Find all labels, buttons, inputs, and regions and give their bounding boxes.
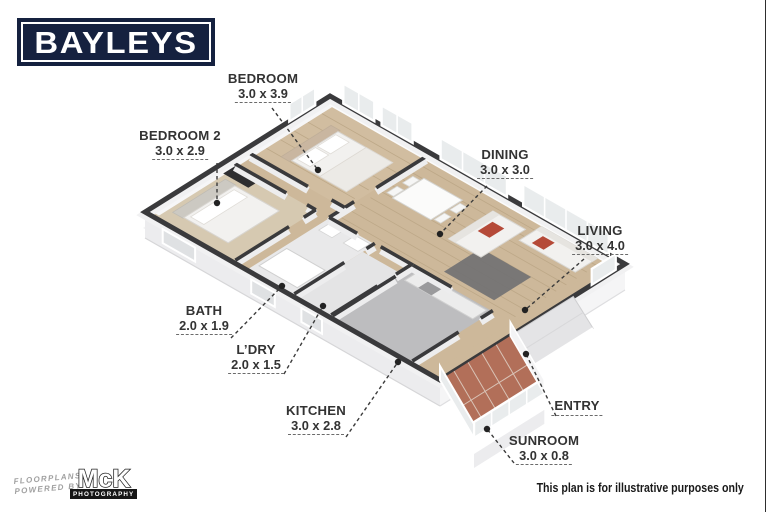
room-name-living: LIVING [572, 224, 628, 238]
room-label-bedroom2: BEDROOM 23.0 x 2.9 [139, 129, 221, 160]
room-name-kitchen: KITCHEN [286, 404, 346, 418]
room-name-bedroom2: BEDROOM 2 [139, 129, 221, 143]
room-dims-bedroom: 3.0 x 3.9 [235, 87, 291, 103]
room-name-sunroom: SUNROOM [509, 434, 579, 448]
mck-photography-logo: FLOORPLANS POWERED BY McK PHOTOGRAPHY [13, 465, 143, 505]
leader-dot-bath [279, 283, 285, 289]
room-dims-bedroom2: 3.0 x 2.9 [152, 144, 208, 160]
floor-plan-3d [0, 0, 768, 512]
room-label-dining: DINING3.0 x 3.0 [477, 148, 533, 179]
room-dims-kitchen: 3.0 x 2.8 [288, 419, 344, 435]
room-name-bath: BATH [176, 304, 232, 318]
room-name-ldry: L’DRY [228, 343, 284, 357]
room-label-living: LIVING3.0 x 4.0 [572, 224, 628, 255]
room-dims-living: 3.0 x 4.0 [572, 239, 628, 255]
leader-dot-entry [523, 351, 529, 357]
room-label-bedroom: BEDROOM3.0 x 3.9 [228, 72, 298, 103]
leader-dot-bedroom2 [214, 200, 220, 206]
photo-edge-line [765, 0, 767, 512]
disclaimer-text: This plan is for illustrative purposes o… [537, 481, 744, 495]
room-label-kitchen: KITCHEN3.0 x 2.8 [286, 404, 346, 435]
room-label-sunroom: SUNROOM3.0 x 0.8 [509, 434, 579, 465]
room-name-bedroom: BEDROOM [228, 72, 298, 86]
room-label-ldry: L’DRY2.0 x 1.5 [228, 343, 284, 374]
room-name-text: ENTRY [551, 399, 602, 416]
room-dims-ldry: 2.0 x 1.5 [228, 358, 284, 374]
leader-dot-kitchen [395, 359, 401, 365]
room-dims-bath: 2.0 x 1.9 [176, 319, 232, 335]
room-dims-sunroom: 3.0 x 0.8 [516, 449, 572, 465]
floorplan-page: BAYLEYS BEDROOM3.0 x 3.9BEDROOM 23.0 x 2… [0, 0, 768, 512]
leader-dot-dining [437, 231, 443, 237]
leader-dot-ldry [320, 303, 326, 309]
room-label-bath: BATH2.0 x 1.9 [176, 304, 232, 335]
leader-dot-sunroom [484, 426, 490, 432]
room-name-entry: ENTRY [551, 399, 602, 416]
photography-bar: PHOTOGRAPHY [70, 489, 137, 499]
leader-dot-bedroom [315, 167, 321, 173]
leader-dot-living [522, 307, 528, 313]
room-label-entry: ENTRY [551, 399, 602, 416]
room-name-dining: DINING [477, 148, 533, 162]
room-dims-dining: 3.0 x 3.0 [477, 163, 533, 179]
